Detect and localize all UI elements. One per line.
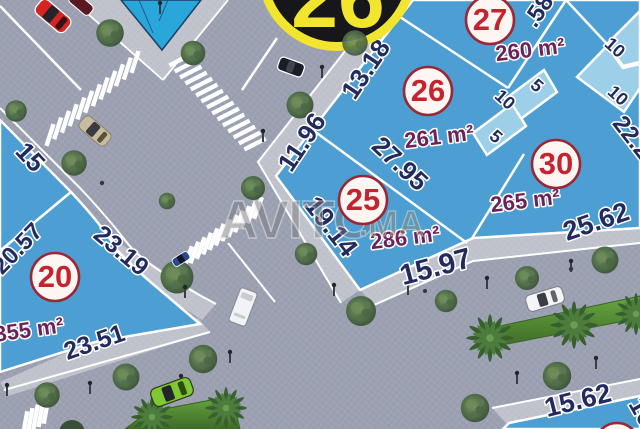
svg-text:26: 26 <box>411 73 445 108</box>
svg-text:20: 20 <box>38 259 72 294</box>
svg-text:25: 25 <box>346 182 380 217</box>
svg-text:26: 26 <box>291 0 384 45</box>
svg-text:30: 30 <box>539 146 573 181</box>
svg-text:27: 27 <box>473 2 507 37</box>
